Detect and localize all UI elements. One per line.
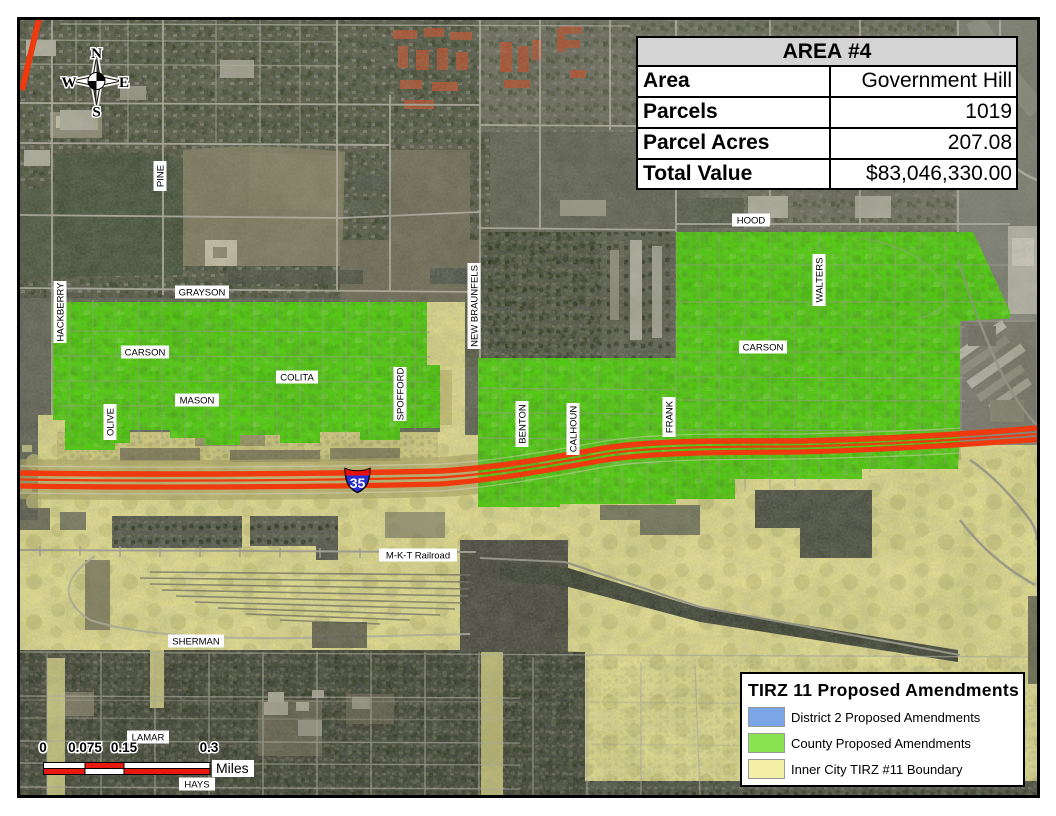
svg-text:OLIVE: OLIVE (106, 408, 117, 436)
svg-text:WALTERS: WALTERS (815, 258, 826, 303)
svg-text:SPOFFORD: SPOFFORD (396, 367, 407, 420)
svg-text:W: W (62, 75, 77, 91)
svg-text:MASON: MASON (180, 396, 215, 407)
svg-text:CARSON: CARSON (743, 343, 784, 354)
svg-text:Miles: Miles (216, 760, 249, 776)
svg-text:NEW BRAUNFELS: NEW BRAUNFELS (470, 265, 481, 347)
svg-text:S: S (92, 105, 100, 121)
svg-text:0.15: 0.15 (111, 740, 138, 755)
svg-text:HOOD: HOOD (737, 216, 766, 227)
svg-text:HACKBERRY: HACKBERRY (56, 282, 67, 342)
svg-text:0: 0 (39, 740, 47, 755)
svg-text:0.3: 0.3 (200, 740, 219, 755)
svg-text:SHERMAN: SHERMAN (172, 637, 220, 648)
svg-text:BENTON: BENTON (518, 404, 529, 444)
svg-text:0.075: 0.075 (68, 740, 102, 755)
svg-text:CARSON: CARSON (125, 348, 166, 359)
svg-text:N: N (91, 46, 102, 62)
svg-text:FRANK: FRANK (665, 400, 676, 433)
svg-text:M-K-T Railroad: M-K-T Railroad (386, 551, 450, 562)
svg-text:COLITA: COLITA (280, 373, 314, 384)
svg-text:GRAYSON: GRAYSON (179, 288, 226, 299)
svg-text:CALHOUN: CALHOUN (569, 406, 580, 453)
svg-text:E: E (119, 75, 129, 91)
svg-text:35: 35 (350, 475, 366, 491)
svg-text:PINE: PINE (156, 165, 167, 187)
